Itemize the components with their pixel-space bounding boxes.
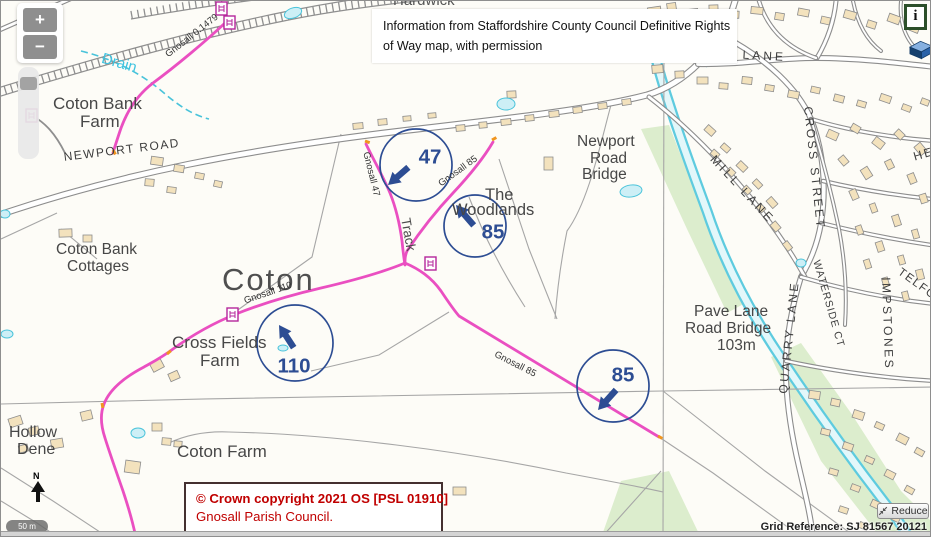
route-marker: 47 (380, 129, 452, 201)
map-symbols: 478511085 (26, 2, 662, 439)
zoom-out-button[interactable]: − (23, 35, 57, 59)
map-viewport[interactable]: 478511085 HardwickCoton BankFarmNEWPORT … (0, 0, 931, 537)
cube-icon[interactable] (908, 37, 931, 66)
bridge-icon (227, 308, 238, 321)
svg-text:85: 85 (612, 364, 635, 387)
bottom-border-strip (1, 531, 930, 536)
collapse-icon (878, 506, 888, 516)
copyright-line2: Gnosall Parish Council. (196, 508, 431, 526)
scale-bar-label: 50 m (18, 522, 36, 531)
route-marker: 85 (577, 350, 649, 422)
bridge-icon (425, 257, 436, 270)
map-base-geometry (1, 1, 931, 537)
route-marker: 85 (444, 195, 506, 257)
route-marker: 110 (257, 305, 333, 381)
svg-text:47: 47 (419, 146, 442, 169)
copyright-box: © Crown copyright 2021 OS [PSL 01910] Gn… (184, 482, 443, 533)
north-arrow-label: N (33, 471, 40, 481)
info-notice-line2: of Way map, with permission (383, 36, 726, 56)
svg-text:110: 110 (277, 355, 310, 378)
north-arrow: N (27, 471, 49, 505)
map-buildings (1, 2, 930, 530)
reduce-button[interactable]: Reduce (877, 503, 929, 519)
info-button[interactable]: i (904, 4, 927, 30)
zoom-slider-handle[interactable] (20, 77, 37, 90)
cube-icon-graphic (908, 37, 931, 61)
bridge-icon (224, 16, 235, 29)
map-canvas: 478511085 (1, 1, 931, 537)
zoom-controls: + − (17, 3, 63, 63)
svg-text:85: 85 (482, 221, 505, 244)
rights-of-way-paths (101, 23, 659, 537)
reduce-button-label: Reduce (891, 505, 927, 517)
zoom-in-button[interactable]: + (23, 8, 57, 32)
copyright-line1: © Crown copyright 2021 OS [PSL 01910] (196, 490, 431, 508)
info-notice: Information from Staffordshire County Co… (372, 9, 737, 63)
bridge-icon (216, 2, 227, 15)
zoom-slider[interactable] (18, 67, 39, 159)
info-notice-line1: Information from Staffordshire County Co… (383, 16, 726, 36)
